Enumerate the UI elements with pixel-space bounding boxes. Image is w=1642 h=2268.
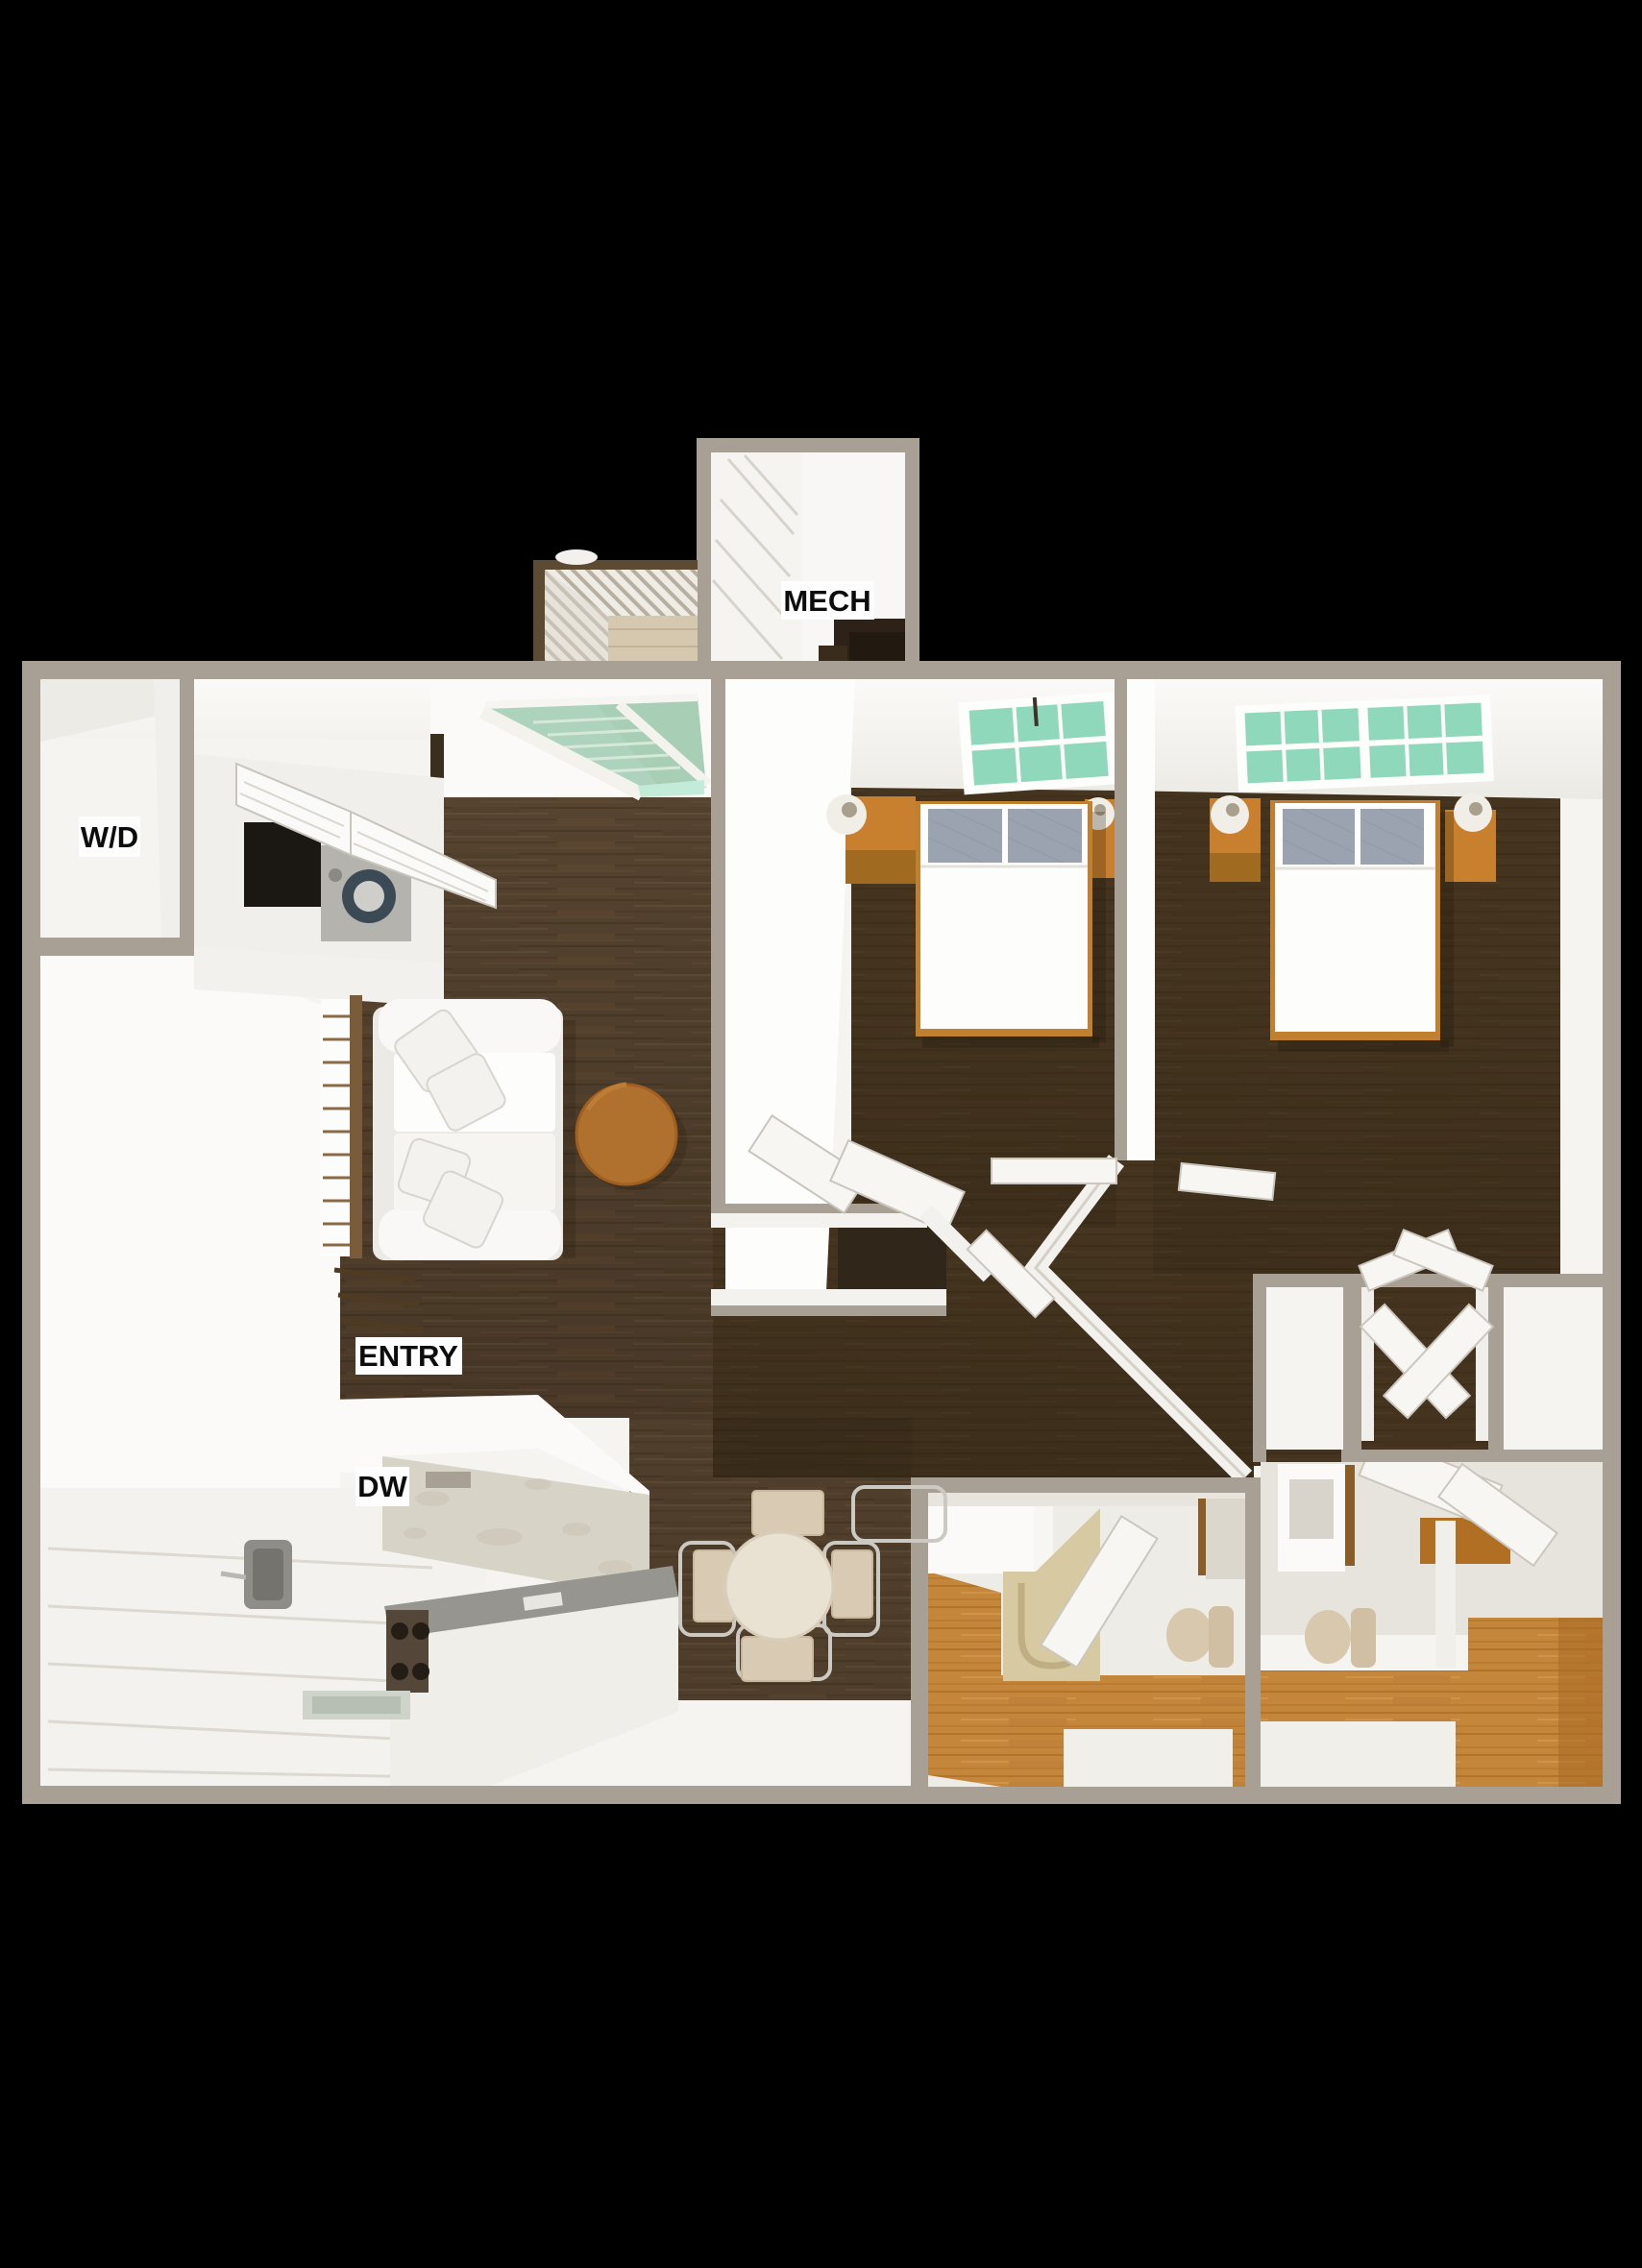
svg-text:DW: DW (357, 1470, 407, 1503)
svg-text:W/D: W/D (81, 820, 138, 854)
svg-text:MECH: MECH (783, 584, 870, 618)
svg-text:ENTRY: ENTRY (358, 1339, 458, 1373)
